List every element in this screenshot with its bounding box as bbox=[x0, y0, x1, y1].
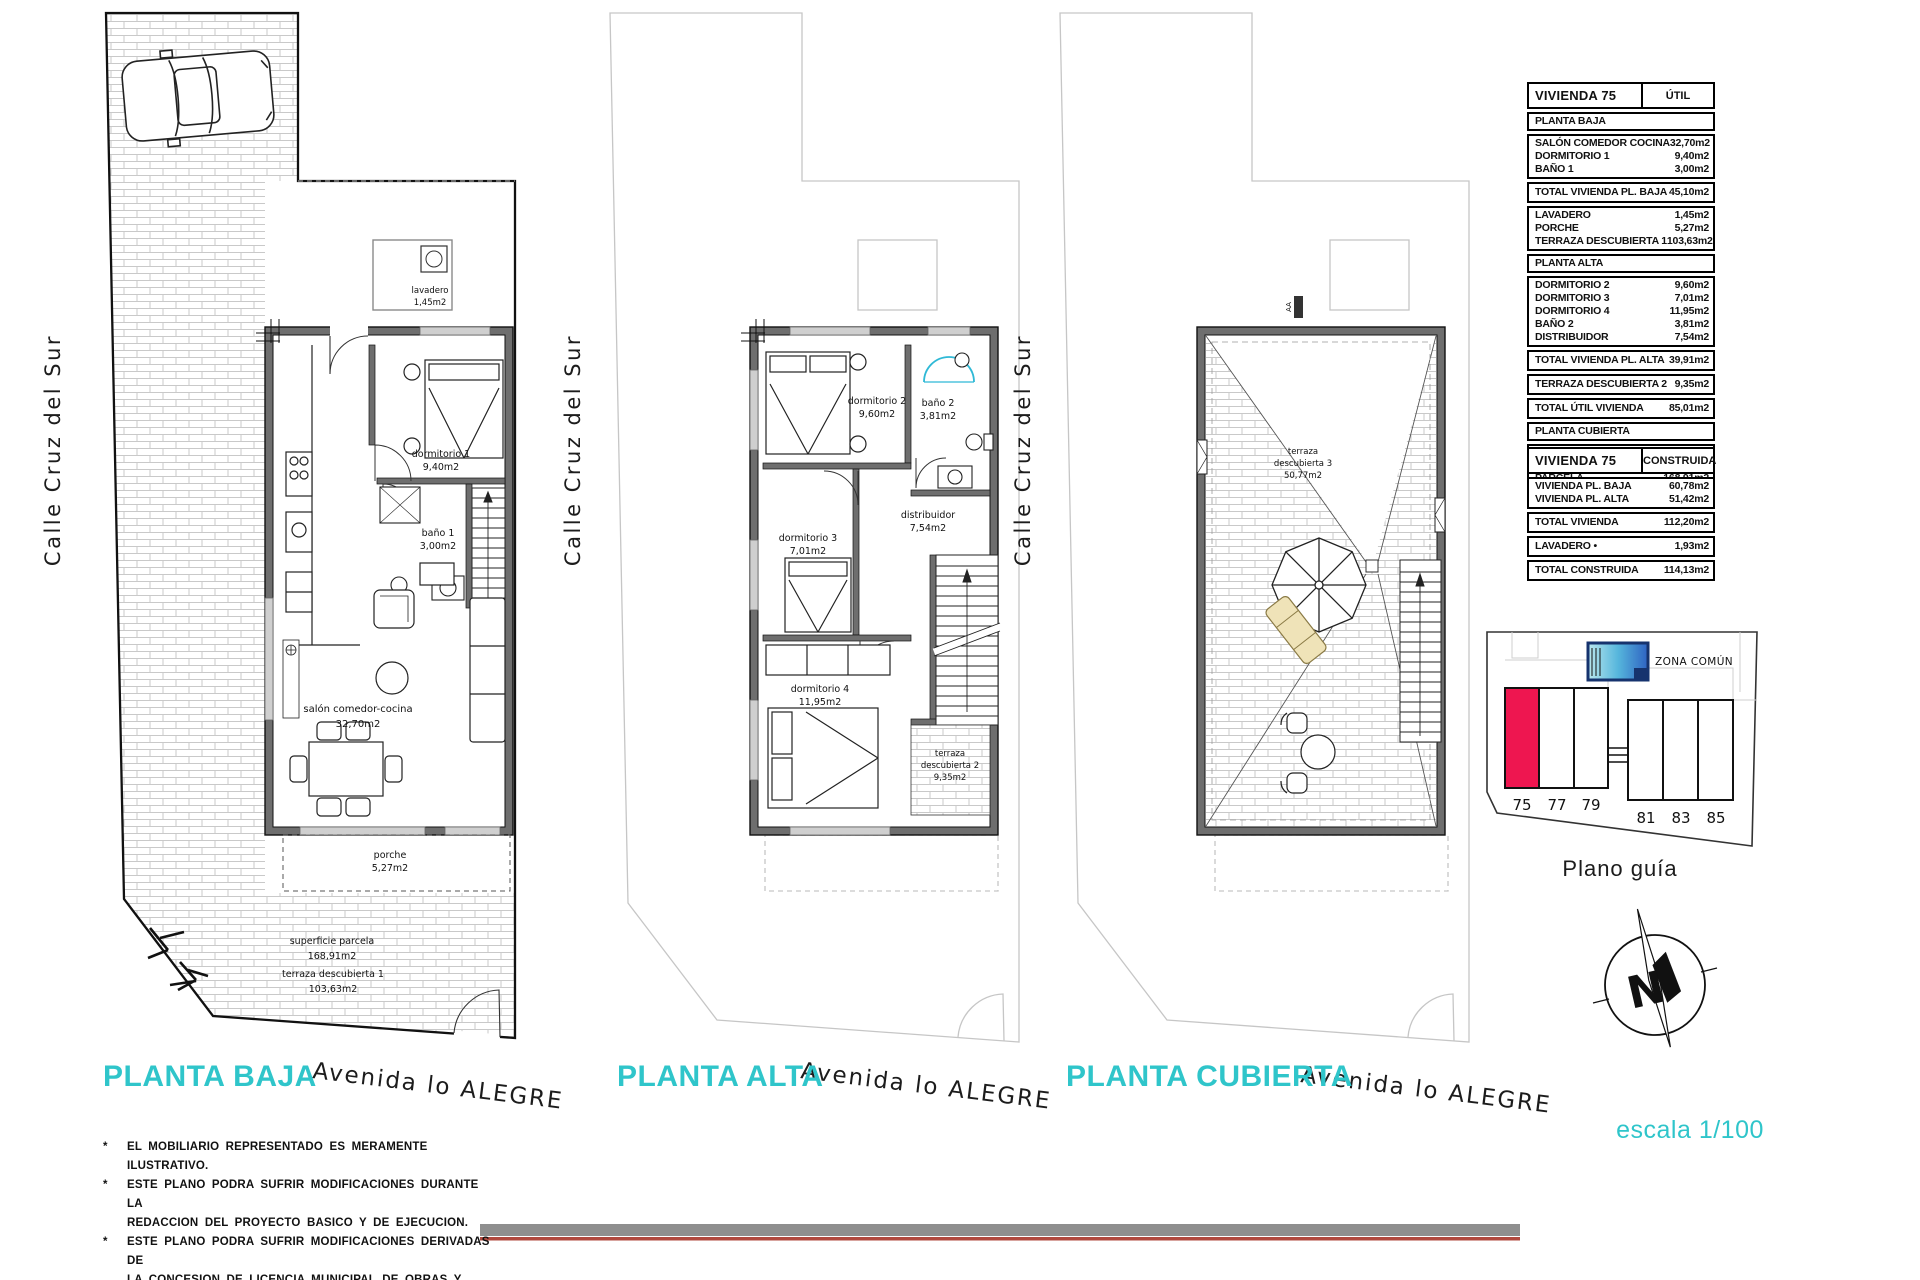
table-row-label: VIVIENDA PL. ALTA bbox=[1535, 493, 1669, 506]
table-section: PLANTA CUBIERTA bbox=[1527, 422, 1715, 441]
room-area: 7,01m2 bbox=[790, 546, 826, 557]
plot-number: 79 bbox=[1581, 796, 1600, 814]
table-row-value: 9,60m2 bbox=[1675, 279, 1709, 292]
table-block: LAVADERO •1,93m2 bbox=[1527, 536, 1715, 557]
table-row-value: 32,70m2 bbox=[1670, 137, 1710, 150]
room-area: 11,95m2 bbox=[799, 697, 842, 708]
table-row-value: 51,42m2 bbox=[1669, 493, 1709, 506]
table-row-label: SALÓN COMEDOR COCINA bbox=[1535, 137, 1670, 150]
table-row-value: 5,27m2 bbox=[1675, 222, 1709, 235]
title-planta-alta: PLANTA ALTA bbox=[617, 1060, 824, 1094]
plot-75-highlight bbox=[1505, 688, 1539, 788]
table-block: DORMITORIO 29,60m2DORMITORIO 37,01m2DORM… bbox=[1527, 276, 1715, 347]
room-area: 3,00m2 bbox=[420, 541, 456, 552]
table-superficies-construidas: VIVIENDA 75CONSTRUIDAVIVIENDA PL. BAJA60… bbox=[1527, 447, 1715, 584]
room-area: 9,60m2 bbox=[859, 409, 895, 420]
plot-row-right bbox=[1628, 700, 1733, 800]
table-row: TOTAL VIVIENDA PL. ALTA39,91m2 bbox=[1529, 353, 1713, 368]
table-row-value: 114,13m2 bbox=[1664, 563, 1709, 578]
table-column-label: ÚTIL bbox=[1641, 84, 1713, 107]
table-row-value: 3,81m2 bbox=[1675, 318, 1709, 331]
note-text: ESTE PLANO PODRA SUFRIR MODIFICACIONES D… bbox=[127, 1233, 500, 1271]
disclaimer-notes: * EL MOBILIARIO REPRESENTADO ES MERAMENT… bbox=[100, 1138, 500, 1280]
stairs bbox=[1400, 560, 1441, 742]
table-row: VIVIENDA PL. ALTA51,42m2 bbox=[1529, 493, 1713, 506]
table-row: BAÑO 13,00m2 bbox=[1529, 163, 1713, 176]
table-row-value: 112,20m2 bbox=[1664, 515, 1709, 530]
room-area: 5,27m2 bbox=[372, 863, 408, 874]
table-row-value: 7,01m2 bbox=[1675, 292, 1709, 305]
table-block: TOTAL VIVIENDA PL. BAJA45,10m2 bbox=[1527, 182, 1715, 203]
note-line: LA CONCESION DE LICENCIA MUNICIPAL DE OB… bbox=[100, 1271, 500, 1280]
north-compass-icon: N bbox=[1593, 904, 1717, 1054]
table-row-label: DORMITORIO 4 bbox=[1535, 305, 1670, 318]
table-row: SALÓN COMEDOR COCINA32,70m2 bbox=[1529, 137, 1713, 150]
table-row-value: 45,10m2 bbox=[1669, 185, 1709, 200]
street-label-side: Calle Cruz del Sur bbox=[1011, 334, 1035, 566]
note-text: REDACCION DEL PROYECTO BASICO Y DE EJECU… bbox=[127, 1214, 500, 1233]
room-label: dormitorio 1 bbox=[412, 449, 470, 460]
table-row: TOTAL VIVIENDA112,20m2 bbox=[1529, 515, 1713, 530]
street-label-bottom: Avenida lo ALEGRE bbox=[799, 1058, 1053, 1115]
table-row-label: TOTAL VIVIENDA bbox=[1535, 515, 1664, 530]
table-section: PLANTA BAJA bbox=[1527, 112, 1715, 131]
table-row-label: PORCHE bbox=[1535, 222, 1675, 235]
table-row-label: TOTAL VIVIENDA PL. BAJA bbox=[1535, 185, 1669, 200]
table-row-label: TOTAL VIVIENDA PL. ALTA bbox=[1535, 353, 1669, 368]
room-area: 9,40m2 bbox=[423, 462, 459, 473]
table-row-label: DORMITORIO 1 bbox=[1535, 150, 1675, 163]
table-row: DORMITORIO 411,95m2 bbox=[1529, 305, 1713, 318]
table-header: VIVIENDA 75ÚTIL bbox=[1527, 82, 1715, 109]
table-row: PORCHE5,27m2 bbox=[1529, 222, 1713, 235]
plot-number: 75 bbox=[1512, 796, 1531, 814]
stairs bbox=[934, 555, 1000, 725]
room-label: terraza bbox=[1288, 447, 1318, 457]
room-area: 7,54m2 bbox=[910, 523, 946, 534]
bedroom3-furniture bbox=[785, 558, 851, 632]
table-row: TERRAZA DESCUBIERTA 29,35m2 bbox=[1529, 377, 1713, 392]
note-line: * ESTE PLANO PODRA SUFRIR MODIFICACIONES… bbox=[100, 1176, 500, 1214]
room-area: 9,35m2 bbox=[934, 773, 967, 783]
street-label-side: Calle Cruz del Sur bbox=[41, 334, 65, 566]
table-block: VIVIENDA PL. BAJA60,78m2VIVIENDA PL. ALT… bbox=[1527, 477, 1715, 509]
table-row-label: DORMITORIO 2 bbox=[1535, 279, 1675, 292]
note-line: * ESTE PLANO PODRA SUFRIR MODIFICACIONES… bbox=[100, 1233, 500, 1271]
title-planta-cubierta: PLANTA CUBIERTA bbox=[1066, 1060, 1353, 1094]
plot-number: 85 bbox=[1706, 809, 1725, 827]
room-area: 50,77m2 bbox=[1284, 471, 1322, 481]
table-row-label: DORMITORIO 3 bbox=[1535, 292, 1675, 305]
lavadero-area: lavadero 1,45m2 bbox=[373, 240, 452, 310]
street-label-side: Calle Cruz del Sur bbox=[561, 334, 585, 566]
note-text: EL MOBILIARIO REPRESENTADO ES MERAMENTE … bbox=[127, 1138, 500, 1176]
street-label-bottom: Avenida lo ALEGRE bbox=[311, 1058, 565, 1115]
room-label: baño 2 bbox=[922, 398, 955, 409]
table-row-value: 11,95m2 bbox=[1670, 305, 1709, 318]
table-block: LAVADERO1,45m2PORCHE5,27m2TERRAZA DESCUB… bbox=[1527, 206, 1715, 251]
plot-number: 81 bbox=[1636, 809, 1655, 827]
table-row-label: VIVIENDA PL. BAJA bbox=[1535, 480, 1669, 493]
footer-bar bbox=[480, 1224, 1520, 1241]
table-title: VIVIENDA 75 bbox=[1529, 449, 1641, 472]
room-label: superficie parcela bbox=[290, 936, 375, 947]
zona-comun-label: ZONA COMÚN bbox=[1655, 655, 1733, 668]
room-area: 103,63m2 bbox=[309, 984, 358, 995]
room-area: 168,91m2 bbox=[308, 951, 357, 962]
site-guide-map: ZONA COMÚN 75 77 79 81 83 85 bbox=[1487, 632, 1757, 846]
note-text: LA CONCESION DE LICENCIA MUNICIPAL DE OB… bbox=[127, 1271, 500, 1280]
room-label: dormitorio 3 bbox=[779, 533, 837, 544]
table-row: DORMITORIO 29,60m2 bbox=[1529, 279, 1713, 292]
table-row-value: 9,40m2 bbox=[1675, 150, 1709, 163]
table-row-value: 1,93m2 bbox=[1675, 539, 1709, 554]
table-row: LAVADERO1,45m2 bbox=[1529, 209, 1713, 222]
section-marker-flag bbox=[1294, 296, 1303, 318]
room-label: dormitorio 4 bbox=[791, 684, 849, 695]
table-row: TOTAL VIVIENDA PL. BAJA45,10m2 bbox=[1529, 185, 1713, 200]
table-block: SALÓN COMEDOR COCINA32,70m2DORMITORIO 19… bbox=[1527, 134, 1715, 179]
planta-cubierta-drawing: AA terraza descubierta 3 50,77m2 Calle C… bbox=[1011, 13, 1553, 1119]
table-row-label: TERRAZA DESCUBIERTA 1 bbox=[1535, 235, 1667, 248]
table-block: TOTAL VIVIENDA112,20m2 bbox=[1527, 512, 1715, 533]
table-row: DISTRIBUIDOR7,54m2 bbox=[1529, 331, 1713, 344]
room-area: 1,45m2 bbox=[414, 298, 447, 308]
table-block: TOTAL CONSTRUIDA114,13m2 bbox=[1527, 560, 1715, 581]
note-bullet: * bbox=[100, 1176, 127, 1214]
table-block: TERRAZA DESCUBIERTA 29,35m2 bbox=[1527, 374, 1715, 395]
room-label: baño 1 bbox=[422, 528, 455, 539]
table-row-label: BAÑO 2 bbox=[1535, 318, 1675, 331]
room-label: descubierta 3 bbox=[1274, 459, 1332, 469]
room-area: 3,81m2 bbox=[920, 411, 956, 422]
table-row-value: 1,45m2 bbox=[1675, 209, 1709, 222]
table-row-value: 60,78m2 bbox=[1669, 480, 1709, 493]
room-label: lavadero bbox=[412, 286, 449, 296]
table-title: VIVIENDA 75 bbox=[1529, 84, 1641, 107]
table-row-label: TERRAZA DESCUBIERTA 2 bbox=[1535, 377, 1675, 392]
table-row: TERRAZA DESCUBIERTA 1103,63m2 bbox=[1529, 235, 1713, 248]
table-row-label: DISTRIBUIDOR bbox=[1535, 331, 1675, 344]
bedroom4-furniture bbox=[758, 645, 890, 808]
planta-baja-drawing: lavadero 1,45m2 bbox=[41, 13, 565, 1115]
table-row: TOTAL CONSTRUIDA114,13m2 bbox=[1529, 563, 1713, 578]
table-row: DORMITORIO 37,01m2 bbox=[1529, 292, 1713, 305]
table-row: DORMITORIO 19,40m2 bbox=[1529, 150, 1713, 163]
room-label: porche bbox=[374, 850, 407, 861]
title-planta-baja: PLANTA BAJA bbox=[103, 1060, 317, 1094]
table-row-value: 9,35m2 bbox=[1675, 377, 1709, 392]
note-line: * EL MOBILIARIO REPRESENTADO ES MERAMENT… bbox=[100, 1138, 500, 1176]
stairs bbox=[472, 488, 505, 608]
table-row: BAÑO 23,81m2 bbox=[1529, 318, 1713, 331]
table-header: VIVIENDA 75CONSTRUIDA bbox=[1527, 447, 1715, 474]
section-marker-label: AA bbox=[1285, 302, 1293, 312]
room-label: terraza descubierta 1 bbox=[282, 969, 384, 980]
floorplan-sheet: lavadero 1,45m2 bbox=[0, 0, 1920, 1280]
note-bullet: * bbox=[100, 1138, 127, 1176]
table-row-value: 103,63m2 bbox=[1667, 235, 1713, 248]
table-row-value: 3,00m2 bbox=[1675, 163, 1709, 176]
table-row-value: 85,01m2 bbox=[1669, 401, 1709, 416]
plano-guia-label: Plano guía bbox=[1545, 856, 1695, 882]
plot-number: 77 bbox=[1547, 796, 1566, 814]
table-row-label: TOTAL ÚTIL VIVIENDA bbox=[1535, 401, 1669, 416]
room-area: 32,70m2 bbox=[336, 719, 381, 730]
room-label: terraza bbox=[935, 749, 965, 759]
note-bullet bbox=[100, 1214, 127, 1233]
community-pool bbox=[1588, 643, 1648, 680]
table-row-label: LAVADERO • bbox=[1535, 539, 1675, 554]
table-row-label: TOTAL CONSTRUIDA bbox=[1535, 563, 1664, 578]
table-block: TOTAL VIVIENDA PL. ALTA39,91m2 bbox=[1527, 350, 1715, 371]
table-row: LAVADERO •1,93m2 bbox=[1529, 539, 1713, 554]
table-row-label: BAÑO 1 bbox=[1535, 163, 1675, 176]
note-text: ESTE PLANO PODRA SUFRIR MODIFICACIONES D… bbox=[127, 1176, 500, 1214]
note-line: REDACCION DEL PROYECTO BASICO Y DE EJECU… bbox=[100, 1214, 500, 1233]
table-section: PLANTA ALTA bbox=[1527, 254, 1715, 273]
room-label: descubierta 2 bbox=[921, 761, 979, 771]
table-row-value: 7,54m2 bbox=[1675, 331, 1709, 344]
table-block: TOTAL ÚTIL VIVIENDA85,01m2 bbox=[1527, 398, 1715, 419]
plot-row-left bbox=[1505, 688, 1608, 788]
table-superficies-utiles: VIVIENDA 75ÚTILPLANTA BAJASALÓN COMEDOR … bbox=[1527, 82, 1715, 492]
table-row: VIVIENDA PL. BAJA60,78m2 bbox=[1529, 480, 1713, 493]
room-label: dormitorio 2 bbox=[848, 396, 906, 407]
note-bullet bbox=[100, 1271, 127, 1280]
plot-number: 83 bbox=[1671, 809, 1690, 827]
table-row: TOTAL ÚTIL VIVIENDA85,01m2 bbox=[1529, 401, 1713, 416]
planta-alta-drawing: dormitorio 2 9,60m2 baño 2 3,81m2 distri… bbox=[561, 13, 1053, 1115]
table-column-label: CONSTRUIDA bbox=[1641, 449, 1713, 472]
scale-label: escala 1/100 bbox=[1600, 1116, 1780, 1145]
room-label: distribuidor bbox=[901, 510, 955, 521]
room-label: salón comedor-cocina bbox=[303, 703, 412, 715]
note-bullet: * bbox=[100, 1233, 127, 1271]
table-row-label: LAVADERO bbox=[1535, 209, 1675, 222]
table-row-value: 39,91m2 bbox=[1669, 353, 1709, 368]
